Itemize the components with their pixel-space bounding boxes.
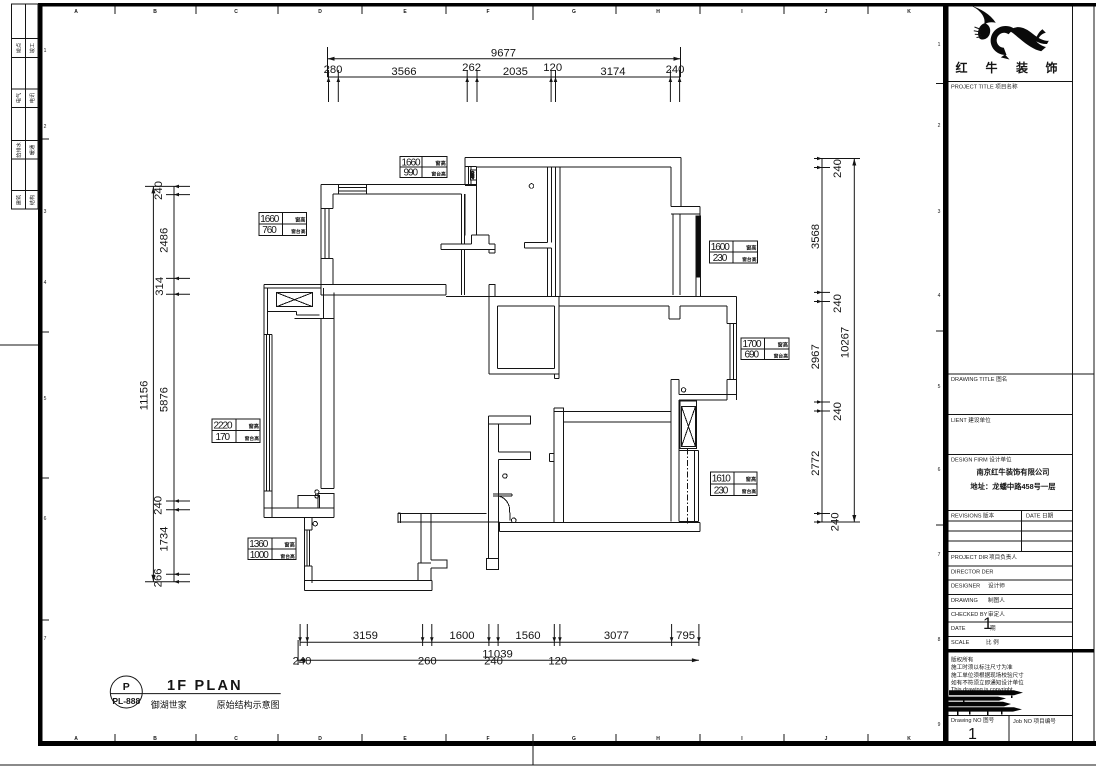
svg-text:DATE: DATE	[951, 626, 966, 632]
svg-text:窗高: 窗高	[284, 540, 294, 548]
svg-text:Job NO 项目编号: Job NO 项目编号	[1013, 717, 1056, 725]
svg-text:项目负责人: 项目负责人	[989, 553, 1017, 561]
svg-text:窗台高: 窗台高	[742, 488, 757, 495]
svg-text:2486: 2486	[158, 228, 170, 253]
svg-text:红: 红	[955, 60, 967, 75]
svg-text:装: 装	[1015, 60, 1028, 75]
svg-text:D: D	[318, 9, 322, 15]
svg-text:1: 1	[44, 48, 47, 54]
svg-text:电讯: 电讯	[28, 92, 36, 103]
svg-text:1600: 1600	[711, 242, 730, 253]
svg-text:262: 262	[462, 62, 481, 74]
svg-text:A: A	[74, 9, 78, 15]
svg-text:1: 1	[968, 726, 977, 743]
svg-text:窗高: 窗高	[435, 159, 445, 167]
svg-text:6: 6	[44, 516, 47, 522]
svg-text:制图人: 制图人	[988, 596, 1005, 604]
svg-text:3077: 3077	[604, 630, 629, 642]
svg-text:1734: 1734	[158, 527, 170, 552]
svg-text:SCALE: SCALE	[951, 640, 970, 646]
svg-text:施工单位须根据现场校验尺寸: 施工单位须根据现场校验尺寸	[951, 671, 1024, 679]
svg-text:1: 1	[938, 42, 941, 48]
svg-text:结构: 结构	[28, 195, 36, 205]
svg-text:牛: 牛	[985, 60, 997, 75]
svg-text:C: C	[234, 736, 238, 742]
svg-text:266: 266	[153, 568, 165, 587]
svg-text:5876: 5876	[158, 387, 170, 412]
svg-text:J: J	[825, 736, 828, 742]
svg-text:窗台高: 窗台高	[245, 435, 260, 442]
svg-text:DESIGN FIRM 设计单位: DESIGN FIRM 设计单位	[951, 456, 1012, 464]
svg-text:窗台高: 窗台高	[774, 352, 789, 359]
svg-text:230: 230	[714, 485, 729, 496]
svg-text:期: 期	[990, 625, 996, 632]
svg-text:PROJECT TITLE 项目名称: PROJECT TITLE 项目名称	[951, 83, 1018, 91]
svg-text:1F PLAN: 1F PLAN	[167, 678, 243, 694]
svg-text:1560: 1560	[515, 630, 540, 642]
svg-text:御湖世家: 御湖世家	[151, 699, 187, 710]
svg-text:版权所有: 版权所有	[951, 656, 974, 664]
svg-text:240: 240	[153, 181, 165, 200]
svg-text:10267: 10267	[840, 327, 852, 358]
svg-text:给排水: 给排水	[15, 141, 23, 157]
svg-text:PROJECT DIR: PROJECT DIR	[951, 555, 988, 561]
svg-text:4: 4	[44, 280, 47, 286]
svg-text:DIRECTOR DER: DIRECTOR DER	[951, 570, 993, 576]
svg-text:竣点: 竣点	[15, 43, 23, 53]
svg-text:230: 230	[713, 253, 728, 264]
svg-text:G: G	[572, 736, 576, 742]
svg-text:240: 240	[832, 294, 844, 313]
svg-text:314: 314	[154, 277, 166, 296]
svg-text:设计师: 设计师	[988, 582, 1005, 590]
svg-text:F: F	[486, 736, 489, 742]
svg-text:原始结构示意图: 原始结构示意图	[217, 699, 280, 710]
svg-text:170: 170	[216, 432, 231, 443]
svg-text:240: 240	[666, 64, 685, 76]
svg-text:B: B	[153, 736, 157, 742]
svg-text:P: P	[123, 681, 130, 693]
svg-text:240: 240	[832, 402, 844, 421]
svg-text:DRAWING: DRAWING	[951, 598, 978, 604]
svg-text:2220: 2220	[214, 421, 233, 432]
svg-text:260: 260	[418, 655, 437, 667]
svg-text:1660: 1660	[260, 214, 279, 225]
svg-text:J: J	[825, 9, 828, 15]
svg-text:南京红牛装饰有限公司: 南京红牛装饰有限公司	[977, 468, 1050, 477]
svg-text:DESIGNER: DESIGNER	[951, 584, 980, 590]
svg-text:3: 3	[44, 209, 47, 215]
svg-text:F: F	[486, 9, 489, 15]
svg-text:Drawing NO 图号: Drawing NO 图号	[951, 716, 995, 724]
svg-text:地址：龙蟠中路458号一层: 地址：龙蟠中路458号一层	[970, 482, 1056, 491]
svg-text:DRAWING TITLE 图名: DRAWING TITLE 图名	[951, 375, 1007, 383]
svg-text:饰: 饰	[1045, 60, 1057, 75]
svg-text:6: 6	[938, 467, 941, 473]
svg-text:120: 120	[548, 655, 567, 667]
svg-text:1360: 1360	[249, 539, 268, 550]
svg-text:A: A	[74, 736, 78, 742]
svg-text:暖通: 暖通	[28, 144, 36, 155]
svg-text:窗台高: 窗台高	[431, 170, 446, 177]
svg-text:B: B	[153, 9, 157, 15]
svg-text:1600: 1600	[449, 630, 474, 642]
svg-text:3: 3	[938, 209, 941, 215]
svg-text:240: 240	[832, 159, 844, 178]
svg-text:280: 280	[324, 64, 343, 76]
svg-text:8: 8	[938, 637, 941, 643]
svg-text:5: 5	[938, 384, 941, 390]
svg-text:4: 4	[938, 293, 941, 299]
svg-text:2: 2	[44, 124, 47, 130]
svg-text:240: 240	[293, 655, 312, 667]
svg-text:电气: 电气	[15, 93, 23, 103]
svg-text:2: 2	[938, 123, 941, 129]
svg-text:REVISIONS 版本: REVISIONS 版本	[951, 512, 995, 520]
svg-text:K: K	[907, 9, 911, 15]
svg-text:480: 480	[470, 171, 475, 179]
svg-text:C: C	[234, 9, 238, 15]
svg-text:比 例: 比 例	[986, 638, 999, 646]
svg-text:窗高: 窗高	[295, 215, 305, 223]
svg-text:窗高: 窗高	[746, 243, 756, 251]
svg-text:760: 760	[262, 225, 277, 236]
svg-text:240: 240	[829, 512, 841, 531]
svg-text:9677: 9677	[491, 48, 516, 60]
svg-text:LIENT 建设单位: LIENT 建设单位	[951, 416, 991, 424]
svg-text:1000: 1000	[250, 550, 269, 561]
svg-text:3568: 3568	[810, 224, 822, 249]
svg-text:1610: 1610	[712, 474, 731, 485]
svg-text:7: 7	[44, 636, 47, 642]
svg-text:2967: 2967	[810, 344, 822, 369]
svg-text:2035: 2035	[503, 66, 528, 78]
svg-text:G: G	[572, 9, 576, 15]
svg-text:3174: 3174	[600, 66, 625, 78]
svg-text:窗台高: 窗台高	[742, 256, 757, 263]
svg-text:D: D	[318, 736, 322, 742]
svg-text:2772: 2772	[810, 451, 822, 476]
svg-text:窗高: 窗高	[778, 340, 788, 348]
svg-text:窗台高: 窗台高	[291, 228, 306, 235]
svg-text:窗高: 窗高	[746, 475, 756, 483]
svg-text:窗台高: 窗台高	[280, 553, 295, 560]
svg-text:施工时须以标注尺寸为准: 施工时须以标注尺寸为准	[951, 663, 1013, 671]
svg-text:建筑: 建筑	[15, 194, 23, 205]
svg-text:3566: 3566	[391, 66, 416, 78]
svg-text:1700: 1700	[743, 339, 762, 350]
svg-text:690: 690	[745, 350, 760, 361]
svg-text:240: 240	[484, 655, 503, 667]
svg-text:240: 240	[153, 496, 165, 515]
svg-text:PL-888: PL-888	[112, 696, 140, 706]
svg-text:9: 9	[938, 722, 941, 728]
svg-text:竣工: 竣工	[28, 43, 36, 53]
svg-text:795: 795	[676, 630, 695, 642]
svg-text:K: K	[907, 736, 911, 742]
svg-text:如有不符须立即通知设计单位: 如有不符须立即通知设计单位	[951, 679, 1024, 687]
svg-text:7: 7	[938, 552, 941, 558]
svg-text:11156: 11156	[139, 381, 151, 411]
svg-text:H: H	[656, 9, 660, 15]
svg-text:5: 5	[44, 396, 47, 402]
svg-text:H: H	[656, 736, 660, 742]
svg-text:3159: 3159	[353, 630, 378, 642]
svg-text:990: 990	[404, 168, 419, 179]
svg-text:DATE 日期: DATE 日期	[1026, 513, 1054, 520]
svg-text:窗高: 窗高	[249, 422, 259, 430]
svg-text:120: 120	[543, 62, 562, 74]
